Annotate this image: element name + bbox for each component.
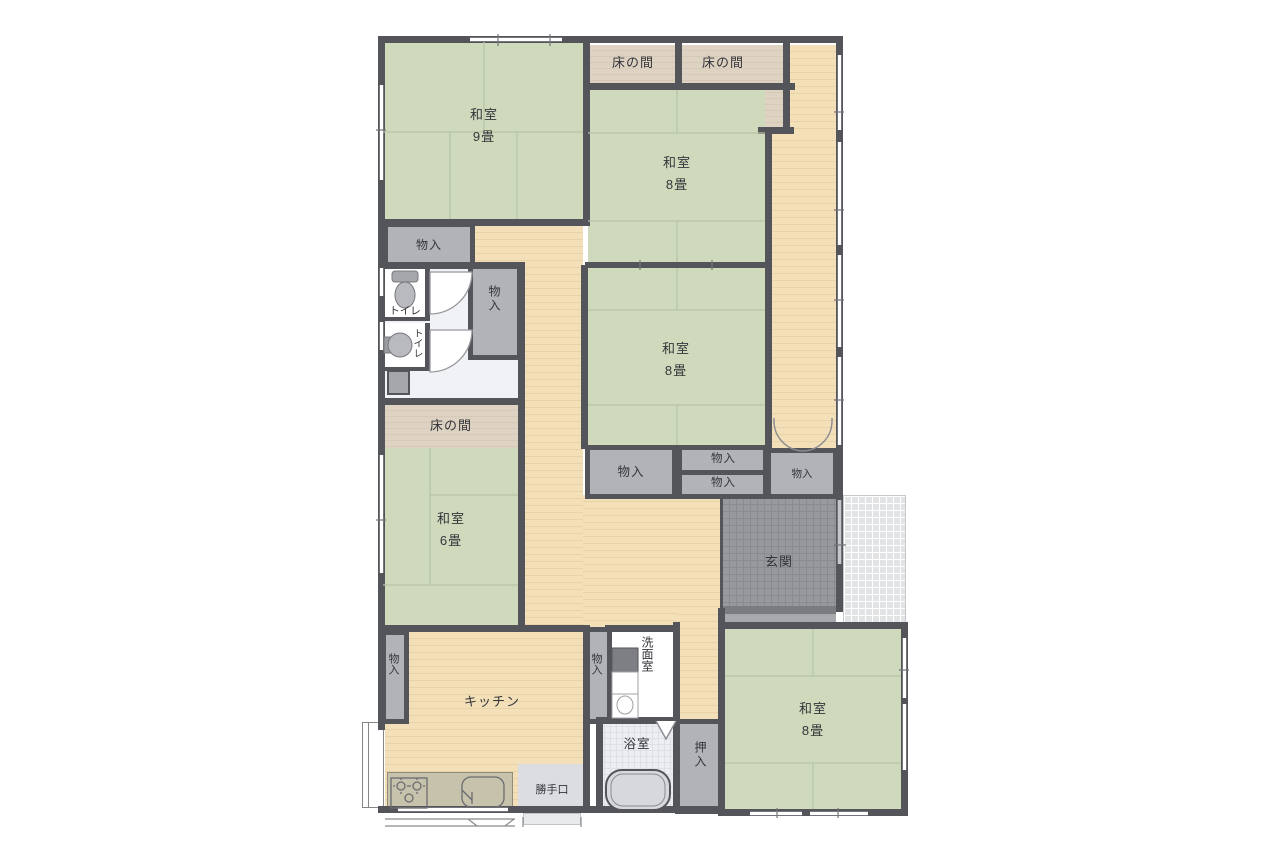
window — [837, 142, 842, 245]
storage-label-e: 物入 — [677, 473, 770, 493]
wall-segment — [675, 43, 682, 90]
tokonoma-label-left: 床の間 — [391, 415, 511, 437]
wall-segment — [718, 608, 725, 815]
katteguchi-step — [523, 813, 581, 825]
katteguchi-label: 勝手口 — [520, 779, 584, 801]
wall-segment — [425, 323, 430, 370]
toilet-label-1: トイレ — [379, 300, 431, 322]
genkan-label: 玄関 — [739, 551, 819, 573]
wall-segment — [605, 625, 680, 632]
room-label-washitsu-8-br: 和室8畳 — [753, 698, 873, 742]
genkan-step-lower — [722, 614, 836, 622]
window — [750, 811, 802, 816]
window — [837, 55, 842, 130]
wall-segment — [383, 367, 430, 371]
room-label-washitsu-6: 和室6畳 — [391, 508, 511, 552]
corridor-lower — [677, 608, 722, 723]
wall-segment — [758, 127, 794, 134]
oshiire-label: 押入 — [693, 741, 707, 769]
window — [398, 807, 508, 812]
storage-label-d: 物入 — [677, 449, 770, 469]
wall-segment — [378, 219, 590, 226]
wall-segment — [378, 625, 525, 632]
tokonoma-label-1: 床の間 — [593, 52, 673, 74]
wall-segment — [518, 262, 525, 632]
kitchen-label: キッチン — [427, 691, 557, 713]
room-label-washitsu-8-mid: 和室8畳 — [616, 338, 736, 382]
wall-segment — [581, 265, 588, 449]
wall-segment — [583, 42, 590, 226]
wall-segment — [596, 717, 603, 810]
bay-window — [362, 722, 384, 808]
wall-segment — [783, 43, 790, 134]
tokonoma-alcove-2-ext — [765, 87, 785, 128]
wall-segment — [720, 497, 723, 608]
wall-segment — [765, 127, 772, 452]
window — [379, 455, 384, 573]
storage-label-f: 物入 — [766, 463, 838, 485]
toilet-label-2: トイレ — [409, 328, 423, 358]
wall-segment — [673, 717, 680, 810]
entrance-porch — [843, 495, 906, 627]
window — [902, 638, 907, 698]
senmen-label: 洗面室 — [640, 636, 654, 672]
bay-window-line — [368, 722, 369, 808]
wall-segment — [378, 398, 525, 405]
window — [837, 255, 842, 347]
wall-segment — [590, 806, 722, 813]
window — [470, 37, 562, 42]
wall-segment — [596, 717, 680, 724]
window — [379, 322, 384, 350]
storage-label-b: 物入 — [487, 285, 501, 313]
room-label-washitsu-9: 和室9畳 — [424, 104, 544, 148]
wall-segment — [585, 262, 765, 268]
window — [837, 357, 842, 445]
storage-label-c: 物入 — [585, 461, 677, 483]
window — [810, 811, 868, 816]
floor-plan: 和室9畳 床の間 床の間 和室8畳 物入 トイレ トイレ 物入 床の間 和室6畳… — [0, 0, 1280, 867]
engawa-veranda — [772, 134, 836, 450]
storage-label-a: 物入 — [383, 234, 475, 256]
wall-segment — [378, 36, 843, 43]
window — [379, 85, 384, 180]
wall-segment — [583, 83, 795, 90]
genkan-step-upper — [722, 606, 836, 614]
wall-segment — [378, 262, 525, 269]
bath-label: 浴室 — [599, 733, 675, 755]
wall-segment — [673, 622, 680, 722]
engawa-veranda-narrow — [790, 45, 836, 134]
storage-kitchen-left — [381, 630, 409, 724]
corridor-vertical — [522, 226, 583, 632]
window — [379, 268, 384, 296]
storage-label-g: 物入 — [386, 653, 400, 675]
storage-label-h: 物入 — [589, 653, 603, 675]
front-door — [837, 500, 842, 564]
wall-segment — [718, 622, 908, 629]
window — [902, 704, 907, 770]
kitchen-counter — [387, 772, 513, 808]
room-label-washitsu-8-top: 和室8畳 — [617, 152, 737, 196]
tokonoma-label-2: 床の間 — [683, 52, 763, 74]
wall-segment — [515, 625, 590, 632]
